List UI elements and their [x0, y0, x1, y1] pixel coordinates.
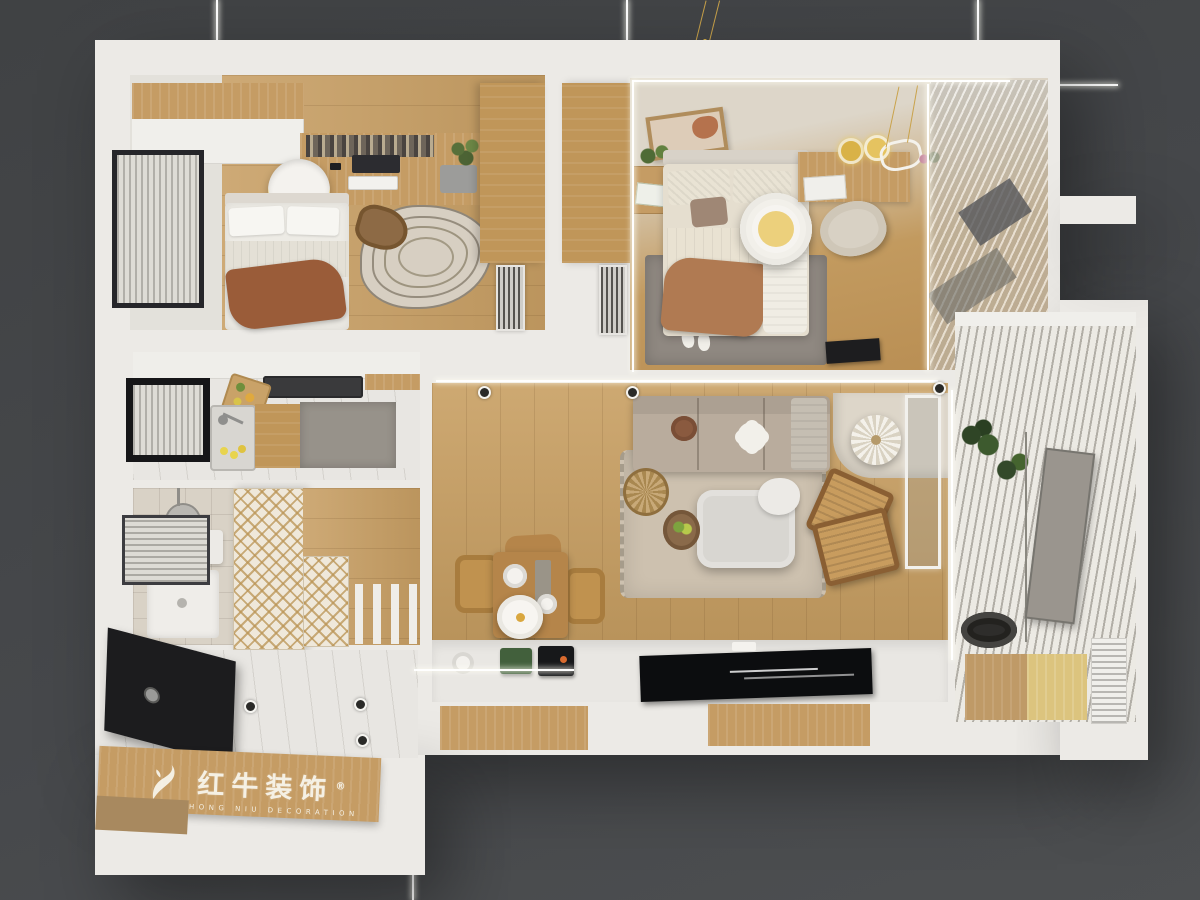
bedroom2-tv — [825, 338, 880, 364]
led-strip — [436, 380, 938, 382]
recessed-downlight — [626, 386, 639, 399]
wood-slat — [391, 584, 399, 644]
ceiling-light-line — [216, 0, 218, 42]
bedroom1-tall-wardrobe — [480, 83, 545, 263]
render-canvas: 红牛装饰® HONG NIU DECORATION — [0, 0, 1200, 900]
glass-block-screen-2 — [303, 556, 349, 647]
bedroom2-ac-vent — [599, 265, 627, 335]
kitchen-wood-rail — [365, 374, 420, 390]
slat-stack — [1091, 638, 1127, 724]
cabinet-wood-front — [708, 704, 870, 746]
accent-pillow — [690, 196, 729, 228]
woven-tray-decor — [623, 468, 669, 516]
bedroom1-overhead-cabinet — [132, 83, 304, 119]
kitchen-window — [126, 378, 210, 462]
power-light — [560, 656, 567, 663]
laptop — [440, 165, 477, 193]
bedroom1-ac-vent — [496, 265, 525, 331]
entry-room: 红牛装饰® HONG NIU DECORATION — [100, 650, 418, 820]
cabinet-wood-front — [440, 706, 588, 750]
fruit — [244, 392, 255, 403]
balcony-cabinet-light — [1027, 654, 1087, 720]
kitchen-base-cabinet-wood — [255, 404, 300, 468]
recessed-downlight — [354, 698, 367, 711]
lemon — [230, 451, 238, 459]
soundbar — [732, 642, 756, 651]
plate — [503, 564, 527, 588]
wood-slat — [373, 584, 381, 644]
brown-throw-blanket — [225, 256, 348, 332]
washing-machine-top — [961, 612, 1017, 648]
wood-slat — [355, 584, 363, 644]
bedroom1-window — [112, 150, 204, 308]
registered-mark: ® — [335, 781, 352, 793]
throw-blanket — [791, 398, 827, 470]
dining-armchair — [565, 568, 605, 624]
lamp-finial — [871, 435, 881, 445]
glass-block-partition — [233, 488, 305, 650]
gold-table-lamp — [838, 138, 864, 164]
curtain-shadow-band — [958, 178, 1032, 246]
bedroom1-bookshelf — [306, 135, 434, 157]
potted-plant — [671, 518, 693, 538]
round-brown-cushion — [671, 416, 697, 441]
recessed-downlight — [933, 382, 946, 395]
bedroom1-bed — [225, 203, 349, 330]
kitchen-sink — [210, 405, 256, 471]
bathroom-window — [122, 515, 210, 585]
sofa — [633, 396, 830, 472]
ceiling-light-line — [1050, 84, 1118, 86]
pendant-wire — [907, 85, 918, 142]
balcony-ledge — [955, 312, 1136, 326]
swirl-ceiling-lamp — [740, 193, 812, 265]
kitchen-counter-end — [396, 402, 420, 468]
shower-arm — [177, 488, 180, 506]
pillow — [287, 206, 340, 236]
side-table — [663, 510, 700, 550]
lemon — [220, 447, 228, 455]
dining-pendant-lamp — [497, 595, 543, 639]
pendant-wire — [709, 1, 720, 42]
glass-partition-frame — [927, 84, 929, 370]
sofa-seam — [697, 398, 699, 470]
entry-wood-ledge — [95, 796, 189, 835]
tv-text-line — [730, 668, 818, 673]
lamp-center — [516, 613, 525, 622]
wood-slat — [409, 584, 417, 644]
flower-pillow — [737, 422, 767, 452]
glass-partition-frame — [632, 80, 1010, 82]
artwork — [691, 115, 720, 140]
lamp-glow — [758, 211, 794, 247]
led-strip — [414, 669, 574, 671]
kitchen-countertop-gray — [300, 402, 396, 468]
living-room — [432, 383, 948, 645]
tv-console-top — [432, 640, 948, 702]
drain — [177, 598, 187, 608]
glass-wall-frame — [951, 390, 953, 660]
pillow — [228, 206, 284, 237]
desktop-computer — [352, 155, 400, 173]
open-book — [803, 175, 847, 202]
tv-text-line — [744, 674, 854, 680]
recessed-downlight — [244, 700, 257, 713]
boucle-chair — [813, 193, 892, 265]
keyboard — [348, 176, 398, 190]
drying-rack-panel — [1025, 448, 1096, 625]
balcony-cabinet-wood — [965, 654, 1027, 720]
rug-ring — [398, 237, 454, 277]
pleated-floor-lamp — [851, 415, 901, 465]
lemon — [238, 445, 246, 453]
hallway-floor — [303, 488, 420, 645]
recessed-downlight — [478, 386, 491, 399]
fruit — [235, 382, 246, 393]
ceiling-light-line — [626, 0, 628, 42]
brand-name-cn: 红牛装饰 — [197, 769, 334, 806]
brown-throw-blanket — [660, 256, 768, 339]
coffee-machine — [538, 646, 574, 676]
balcony-glass-door — [905, 395, 941, 569]
pendant-wire — [886, 87, 900, 148]
balcony-room — [955, 312, 1136, 722]
recessed-downlight — [356, 734, 369, 747]
cabinet-knob — [144, 685, 161, 705]
white-pouf — [758, 478, 800, 515]
cooktop — [263, 376, 363, 398]
glass-partition-frame — [632, 80, 634, 372]
bedroom2-tall-wardrobe — [562, 83, 630, 263]
phone — [330, 163, 341, 170]
tv-panel — [639, 648, 872, 702]
exterior-wall-stub — [1060, 196, 1136, 224]
